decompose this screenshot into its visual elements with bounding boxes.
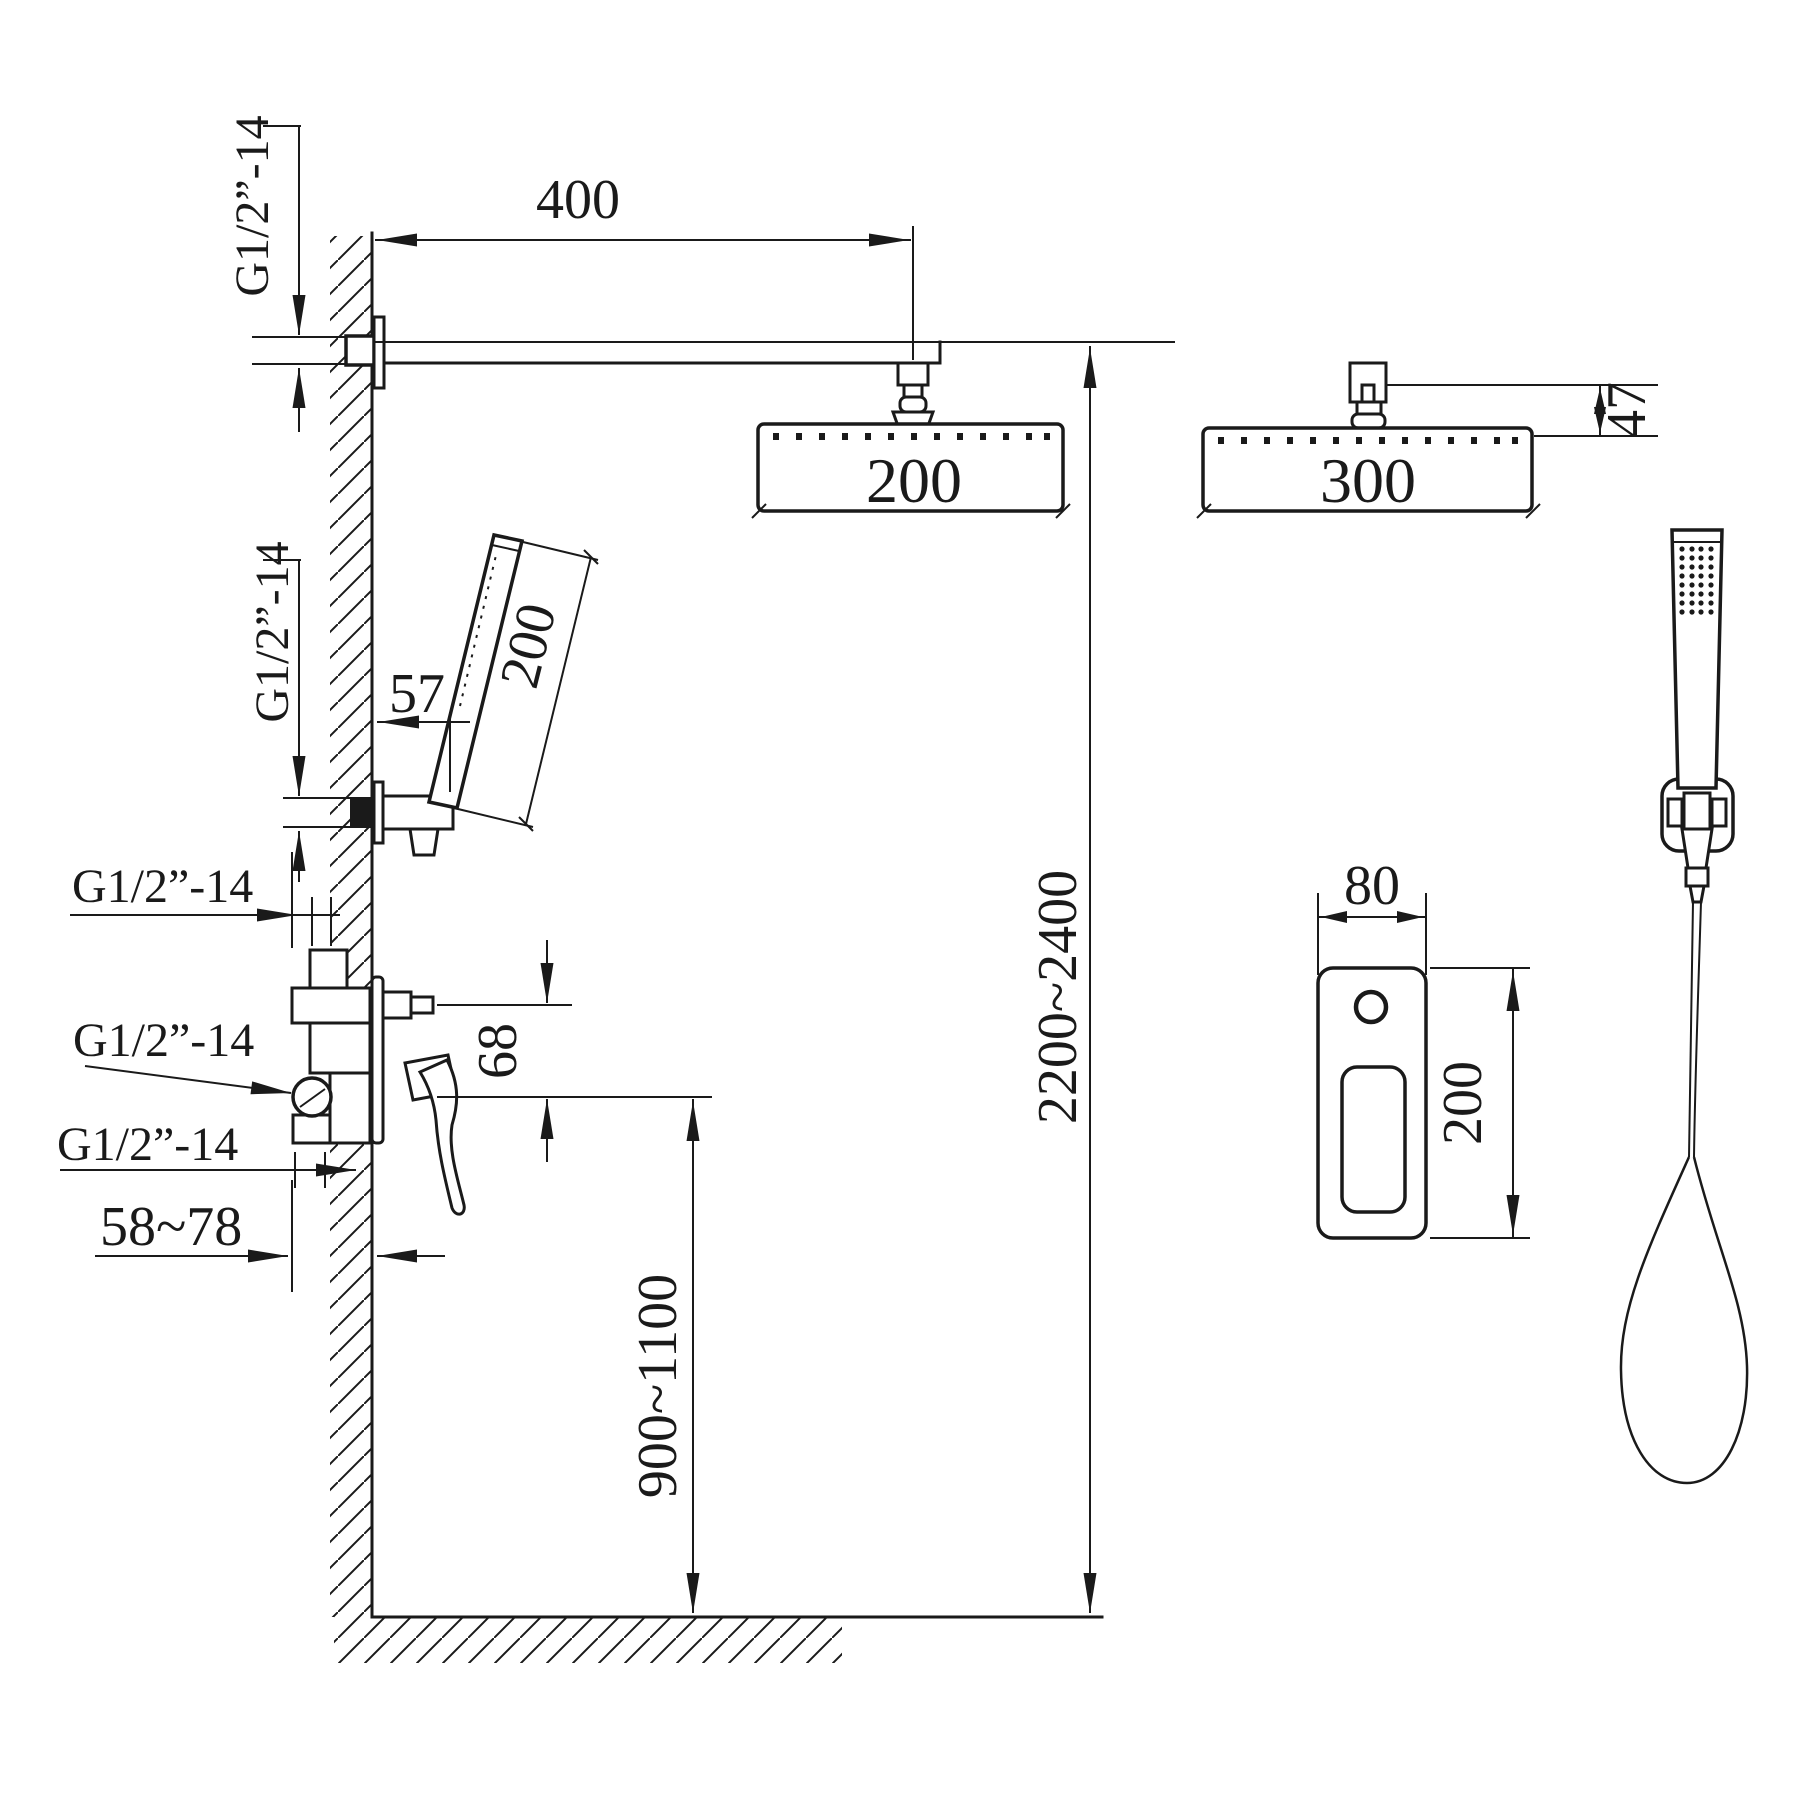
- connector-nut: [898, 363, 928, 385]
- wall-depth-label: 58~78: [100, 1196, 242, 1258]
- trim-plate-height-label: 200: [1432, 1061, 1494, 1145]
- wand-body: [1672, 530, 1722, 788]
- handshower-offset-label: 57: [389, 663, 445, 725]
- arm-flange: [374, 317, 384, 388]
- overhead-width-front-label: 300: [1320, 445, 1416, 516]
- connector-tab: [1362, 385, 1374, 402]
- connector-ball-joint: [900, 397, 926, 412]
- drawing-svg: G1/2”-14 400 200: [0, 0, 1800, 1800]
- spout-stub: [383, 992, 411, 1018]
- connector-ball-joint: [1352, 414, 1385, 428]
- connector-neck: [904, 385, 922, 397]
- wand-grip: [1682, 829, 1712, 868]
- thread-inlet-top-label: G1/2”-14: [72, 860, 253, 913]
- arm-length-label: 400: [536, 169, 620, 231]
- handle-cutout: [1342, 1067, 1405, 1212]
- valve-mid-body: [310, 1023, 370, 1073]
- thread-inlet-middle-label: G1/2”-14: [73, 1014, 254, 1067]
- hose-cone: [1690, 886, 1704, 902]
- bracket-wall-block: [350, 797, 372, 828]
- mount-height-label: 900~1100: [627, 1274, 689, 1498]
- trim-plate-width-label: 80: [1344, 855, 1400, 917]
- floor-hatch: [334, 1617, 842, 1663]
- overhead-width-side-label: 200: [866, 445, 962, 516]
- thread-arm-label: G1/2”-14: [226, 115, 279, 296]
- bracket-nipple: [410, 829, 438, 855]
- technical-drawing-shower-system: G1/2”-14 400 200: [0, 0, 1800, 1800]
- thread-outlet-bottom-label: G1/2”-14: [57, 1118, 238, 1171]
- overhead-height-label: 47: [1596, 382, 1658, 438]
- valve-upper-body: [292, 988, 370, 1023]
- wall-hatch: [330, 236, 372, 1617]
- valve-lower-body: [330, 1073, 370, 1143]
- valve-inlet-port: [293, 1078, 331, 1116]
- hose-nut: [1686, 868, 1708, 886]
- valve-bottom-outlet: [293, 1115, 330, 1143]
- spout-stub-nut: [411, 997, 433, 1013]
- bracket-tab-right: [1712, 799, 1726, 826]
- wand-nut: [1684, 793, 1710, 829]
- overall-height-label: 2200~2400: [1027, 870, 1089, 1124]
- arm-wall-pipe: [346, 336, 374, 365]
- valve-escutcheon: [372, 977, 383, 1143]
- port-spacing-label: 68: [467, 1023, 529, 1079]
- bracket-tab-left: [1668, 799, 1682, 826]
- thread-handshower-label: G1/2”-14: [246, 541, 299, 722]
- valve-top-outlet-pipe: [310, 950, 347, 990]
